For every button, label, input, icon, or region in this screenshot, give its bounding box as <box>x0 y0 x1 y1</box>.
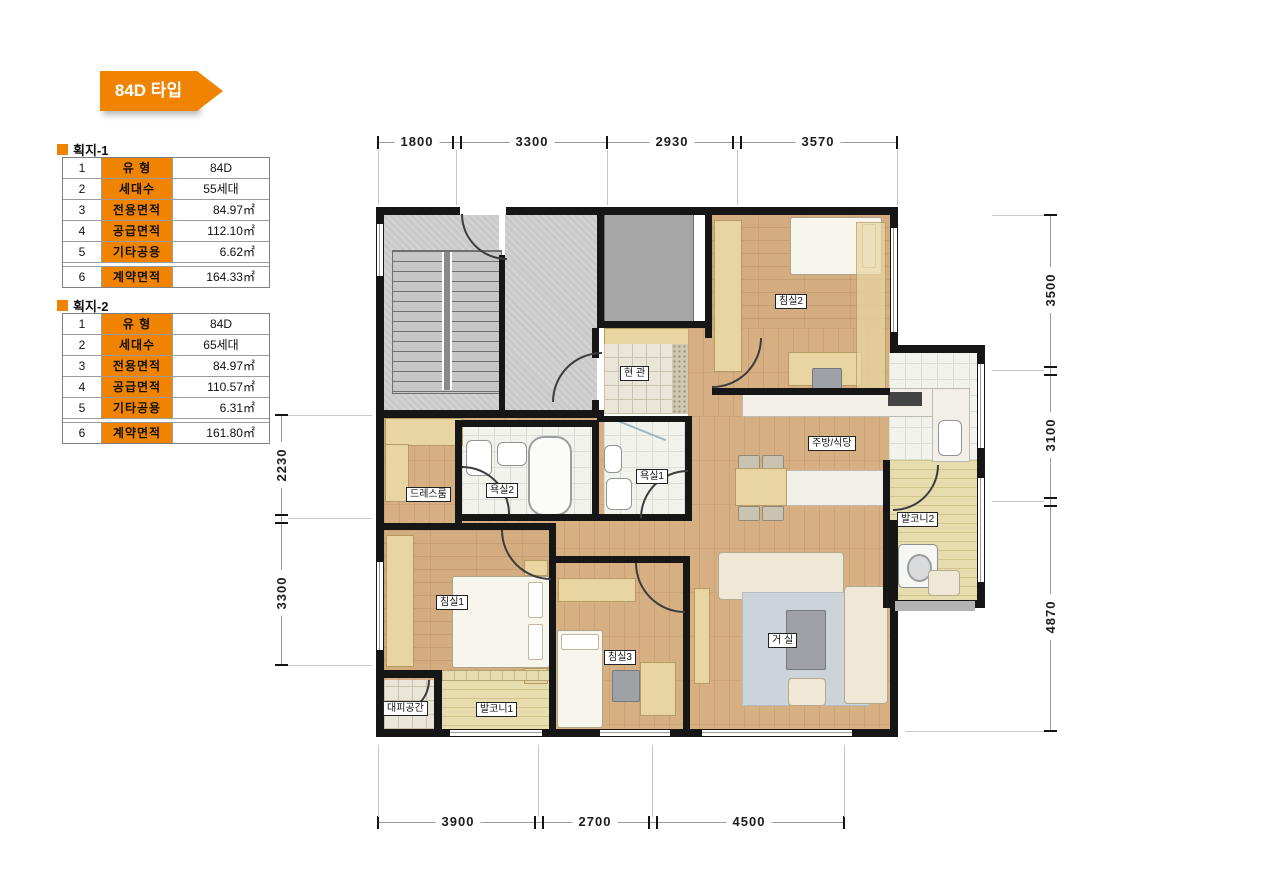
bath2-sink <box>497 442 527 466</box>
dimension-tick <box>377 816 379 829</box>
dim-value: 4500 <box>727 814 772 830</box>
bedroom3-desk <box>640 662 676 716</box>
wall <box>376 410 604 418</box>
extension-line <box>905 731 1044 732</box>
stove <box>888 392 922 406</box>
bedroom3-shelf <box>558 578 636 602</box>
room-label-dressroom: 드레스룸 <box>406 487 451 502</box>
kitchen-window <box>978 364 984 448</box>
living-sofa-side <box>844 586 888 704</box>
room-label-living: 거 실 <box>768 633 797 648</box>
dimension-tick <box>1044 730 1057 732</box>
wall <box>592 400 599 416</box>
dimension-tick <box>1044 374 1057 376</box>
dimension-tick <box>275 522 288 524</box>
dimension-tick <box>275 514 288 516</box>
dimension-tick <box>1044 366 1057 368</box>
kitchen-island <box>785 470 887 506</box>
bedroom3-chair <box>612 670 640 702</box>
floor-plan: 침실2 현 관 주방/식당 욕실1 욕실2 드레스룸 발코니2 침실1 침실3 … <box>0 0 1263 892</box>
wall <box>556 556 690 563</box>
extension-line <box>992 501 1044 502</box>
room-label-shelter: 대피공간 <box>383 701 428 716</box>
dimension-tick <box>275 414 288 416</box>
wall <box>597 321 705 328</box>
dim-value: 2700 <box>573 814 618 830</box>
wall <box>376 207 898 215</box>
balcony2-window <box>978 478 984 582</box>
extension-line <box>288 518 372 519</box>
living-window <box>702 730 852 736</box>
wall <box>712 388 890 395</box>
bath1-sink <box>604 445 622 473</box>
bath1-toilet <box>606 478 632 510</box>
bedroom3-window <box>600 730 670 736</box>
room-label-kitchen-dining: 주방/식당 <box>808 436 856 451</box>
dim-value: 3570 <box>796 134 841 150</box>
wall <box>597 416 692 422</box>
dimension-tick <box>275 664 288 666</box>
staircase-rail <box>442 252 452 390</box>
room-label-bedroom1: 침실1 <box>436 595 468 610</box>
extension-line <box>378 150 379 205</box>
dining-chair <box>762 506 784 521</box>
extension-line <box>844 745 845 817</box>
dim-value: 4870 <box>1043 594 1059 640</box>
dimension-tick <box>648 816 650 829</box>
room-label-balcony2: 발코니2 <box>897 512 938 527</box>
extension-line <box>652 745 653 817</box>
dimension-tick <box>606 136 608 149</box>
entry-gravel-strip <box>672 344 688 414</box>
tv-cabinet <box>694 588 710 684</box>
dimension-tick <box>542 816 544 829</box>
dimension-tick <box>740 136 742 149</box>
extension-line <box>456 150 457 205</box>
dining-table <box>735 468 787 506</box>
dim-value: 2230 <box>274 442 290 488</box>
dimension-tick <box>1044 505 1057 507</box>
extension-line <box>992 370 1044 371</box>
dimension-tick <box>377 136 379 149</box>
brochure-page: 84D 타입 획지-1 1 유 형 84D 2 세대수 55세대 3 전용면적 … <box>0 0 1263 892</box>
bedroom3-pillow <box>561 634 599 650</box>
wall <box>455 420 595 427</box>
balcony2-ledge <box>895 601 975 611</box>
dimension-tick <box>534 816 536 829</box>
dimension-tick <box>1044 214 1057 216</box>
wall <box>434 678 442 729</box>
kitchen-sink <box>938 420 962 456</box>
dim-value: 3900 <box>436 814 481 830</box>
dimension-tick <box>452 136 454 149</box>
extension-line <box>607 150 608 205</box>
bedroom1-pillow <box>528 624 543 660</box>
dim-value: 2930 <box>650 134 695 150</box>
bedroom2-window <box>891 228 897 332</box>
extension-line <box>538 745 539 817</box>
dimension-tick <box>896 136 898 149</box>
bedroom1-wardrobe <box>386 535 414 667</box>
elevator-shaft <box>604 214 694 322</box>
extension-line <box>992 215 1044 216</box>
wall <box>592 420 599 521</box>
dressroom-wardrobe <box>385 418 463 446</box>
dim-value: 1800 <box>395 134 440 150</box>
dim-value: 3300 <box>274 570 290 616</box>
room-label-bath1: 욕실1 <box>636 469 668 484</box>
wall <box>376 670 442 678</box>
room-label-bedroom2: 침실2 <box>775 294 807 309</box>
room-label-bedroom3: 침실3 <box>604 650 636 665</box>
wall <box>499 255 505 412</box>
extension-line <box>288 415 372 416</box>
dimension-tick <box>656 816 658 829</box>
balcony1-window-sill <box>442 670 549 681</box>
wall <box>597 207 604 328</box>
wall <box>883 460 890 608</box>
extension-line <box>737 150 738 205</box>
window <box>377 224 383 276</box>
wall <box>890 345 985 353</box>
bath2-bathtub <box>528 436 572 516</box>
bedroom1-window <box>377 562 383 650</box>
extension-line <box>378 745 379 817</box>
wall <box>705 214 712 338</box>
wall <box>376 207 384 737</box>
dimension-tick <box>732 136 734 149</box>
dim-value: 3100 <box>1043 412 1059 458</box>
extension-line <box>897 150 898 205</box>
room-label-balcony1: 발코니1 <box>476 702 517 717</box>
balcony2-cabinet <box>928 570 960 596</box>
wall <box>376 523 556 530</box>
dim-value: 3500 <box>1043 267 1059 313</box>
dimension-tick <box>460 136 462 149</box>
room-label-bath2: 욕실2 <box>486 483 518 498</box>
room-label-entry: 현 관 <box>620 366 649 381</box>
bedroom2-window-bay <box>856 222 886 390</box>
bedroom1-pillow <box>528 582 543 618</box>
living-stool <box>788 678 826 706</box>
balcony1-window <box>450 730 542 736</box>
dimension-tick <box>1044 497 1057 499</box>
extension-line <box>288 665 372 666</box>
dining-chair <box>738 506 760 521</box>
wall <box>890 520 898 737</box>
dimension-tick <box>843 816 845 829</box>
dim-value: 3300 <box>510 134 555 150</box>
